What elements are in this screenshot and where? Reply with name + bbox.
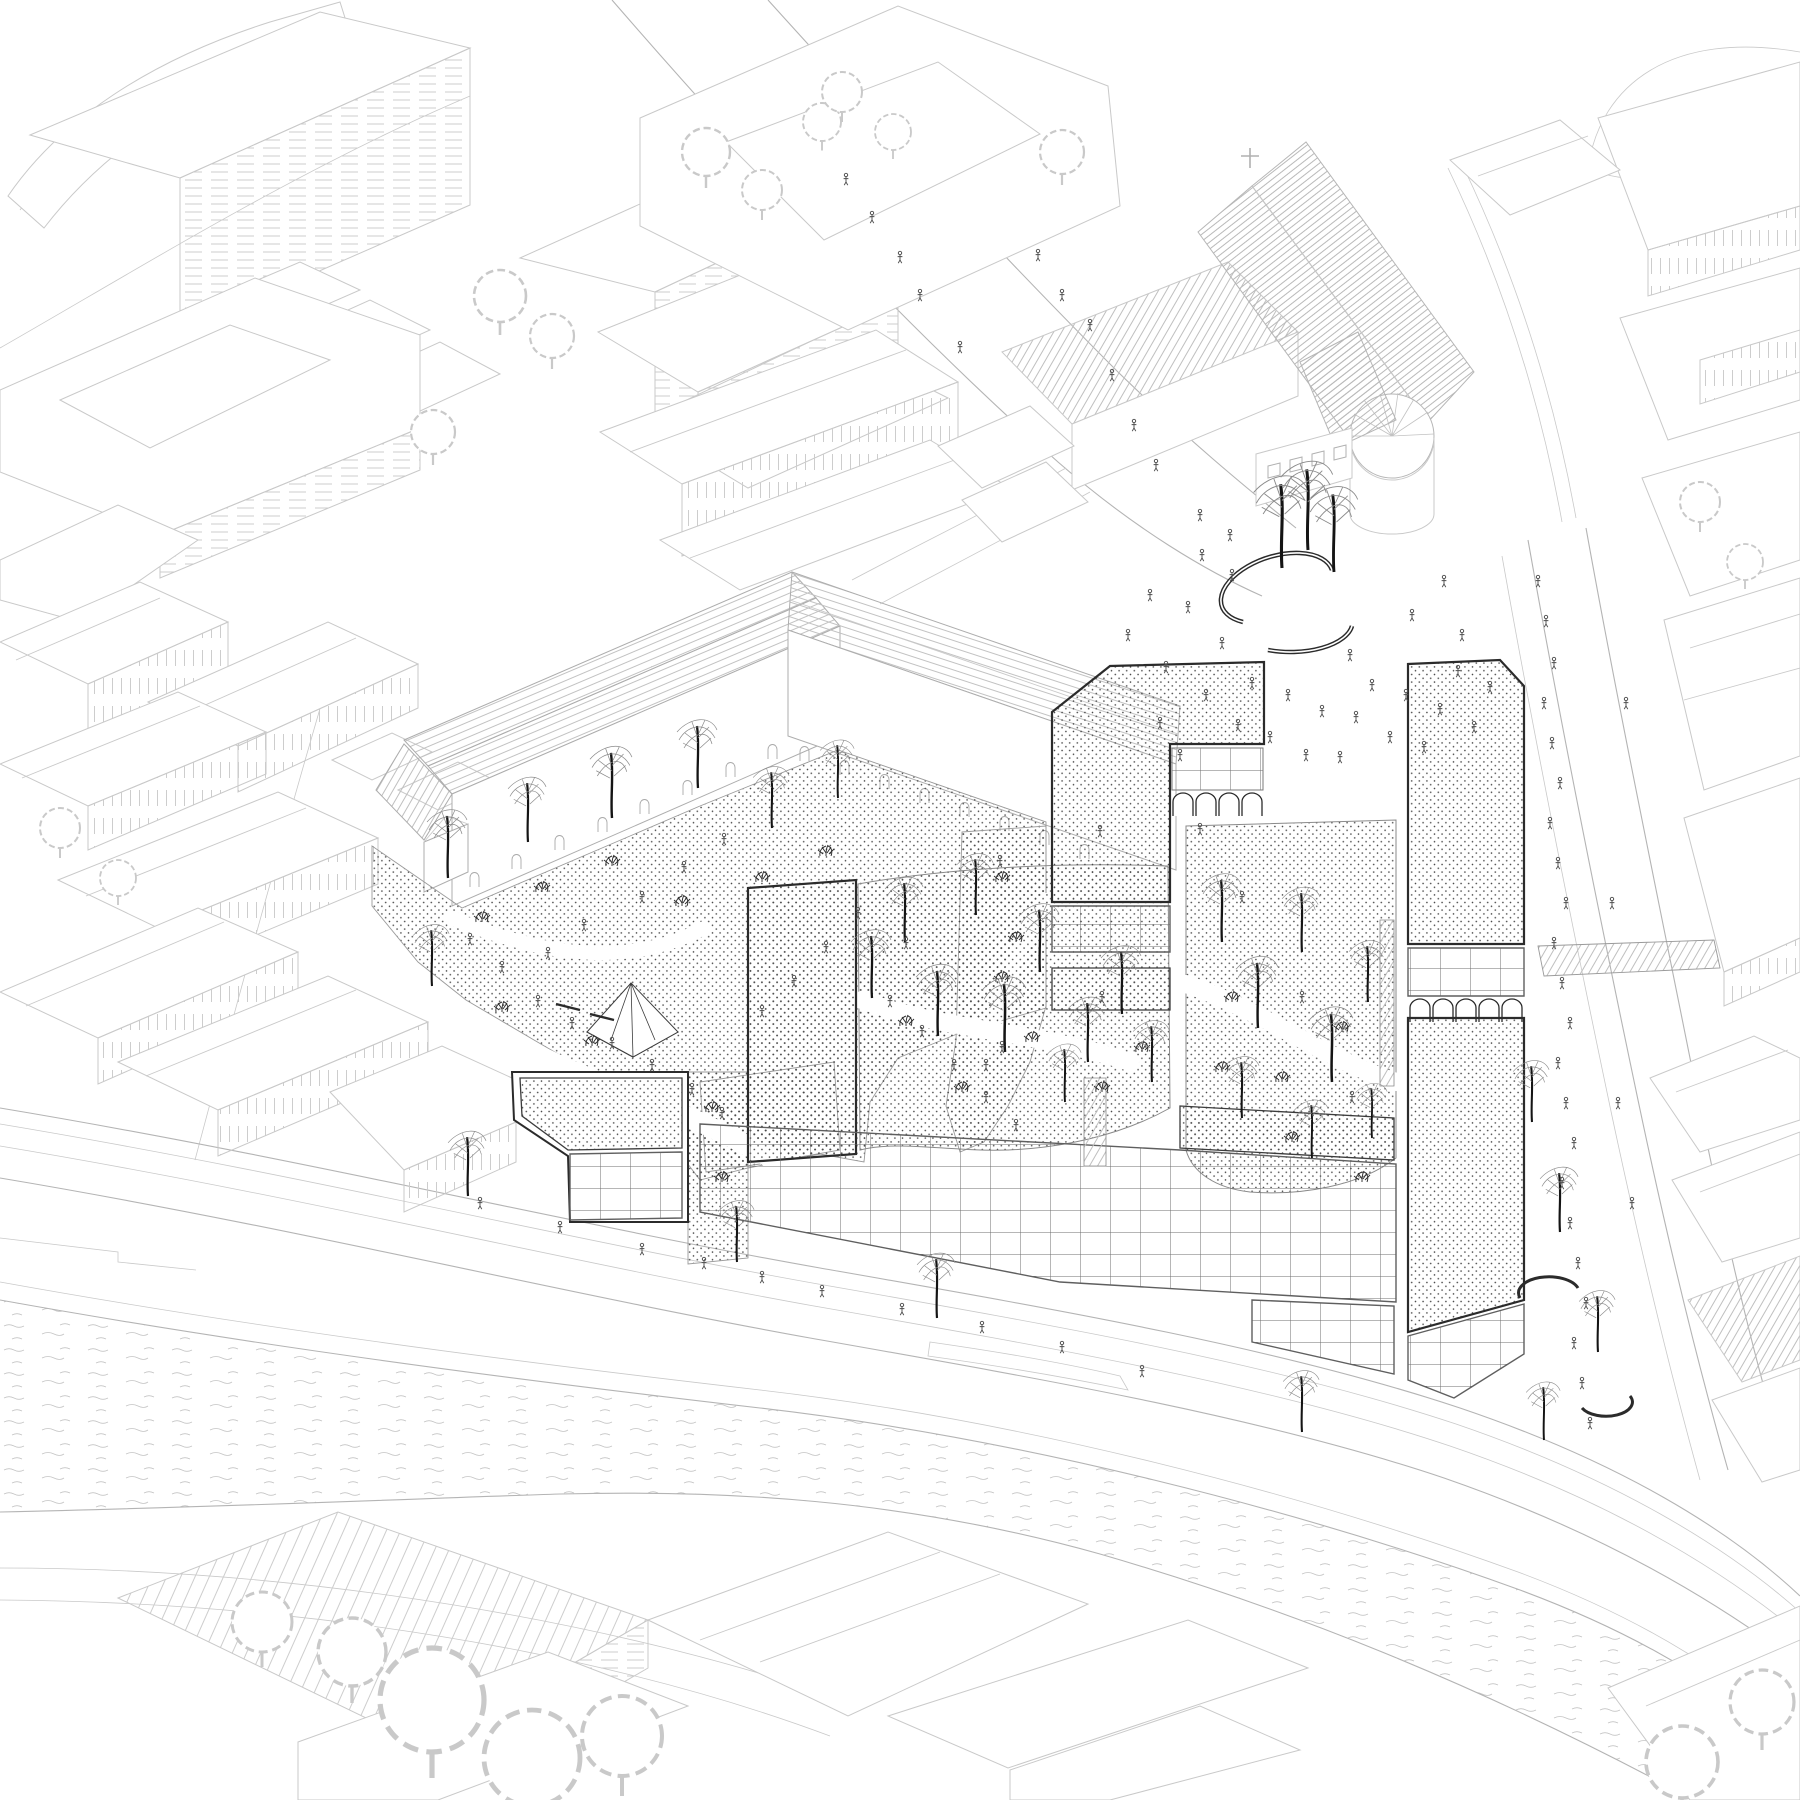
context-tree bbox=[582, 1696, 662, 1796]
site-tree bbox=[1526, 1382, 1560, 1440]
drawing-canvas bbox=[0, 0, 1800, 1800]
church-cross-icon bbox=[1241, 148, 1259, 168]
person bbox=[1354, 711, 1359, 723]
person bbox=[1588, 1417, 1593, 1429]
building-c-south bbox=[1408, 1018, 1524, 1398]
garden-stair bbox=[1084, 1078, 1106, 1166]
person bbox=[1126, 629, 1131, 641]
person bbox=[1286, 689, 1291, 701]
person bbox=[1556, 1057, 1561, 1069]
site-tree bbox=[1283, 1371, 1319, 1432]
person bbox=[1268, 731, 1273, 743]
person bbox=[1200, 549, 1205, 561]
person bbox=[1186, 601, 1191, 613]
person bbox=[1320, 705, 1325, 717]
street-canopy bbox=[1538, 940, 1720, 976]
building-middle-slab bbox=[748, 880, 856, 1162]
person bbox=[900, 1303, 905, 1315]
person bbox=[1410, 609, 1415, 621]
context-tree bbox=[474, 270, 526, 335]
person bbox=[1564, 1097, 1569, 1109]
person bbox=[1568, 1217, 1573, 1229]
person bbox=[558, 1221, 563, 1233]
person bbox=[1304, 749, 1309, 761]
person bbox=[1564, 897, 1569, 909]
person bbox=[1198, 509, 1203, 521]
person bbox=[1560, 977, 1565, 989]
context-block-right bbox=[1598, 62, 1800, 1006]
person bbox=[1572, 1337, 1577, 1349]
person bbox=[820, 1285, 825, 1297]
person bbox=[958, 341, 963, 353]
person bbox=[1542, 697, 1547, 709]
building-d-southwest bbox=[512, 1072, 688, 1222]
person bbox=[1624, 697, 1629, 709]
person bbox=[1228, 529, 1233, 541]
proposed-development bbox=[372, 553, 1632, 1416]
person bbox=[1460, 629, 1465, 641]
person bbox=[1580, 1377, 1585, 1389]
building-b-north bbox=[1408, 660, 1524, 1022]
site-tree bbox=[917, 1253, 955, 1318]
person bbox=[1552, 657, 1557, 669]
person bbox=[1572, 1137, 1577, 1149]
person bbox=[1154, 459, 1159, 471]
person bbox=[1220, 637, 1225, 649]
person bbox=[1140, 1365, 1145, 1377]
context-tree bbox=[40, 808, 80, 858]
person bbox=[1348, 649, 1353, 661]
person bbox=[1568, 1017, 1573, 1029]
person bbox=[640, 1243, 645, 1255]
person bbox=[1616, 1097, 1621, 1109]
person bbox=[478, 1197, 483, 1209]
person bbox=[1548, 817, 1553, 829]
person bbox=[1338, 751, 1343, 763]
person bbox=[1550, 737, 1555, 749]
person bbox=[1610, 897, 1615, 909]
axonometric-site-plan bbox=[0, 0, 1800, 1800]
person bbox=[760, 1271, 765, 1283]
person bbox=[1558, 777, 1563, 789]
person bbox=[1576, 1257, 1581, 1269]
person bbox=[980, 1321, 985, 1333]
person bbox=[1148, 589, 1153, 601]
person bbox=[1036, 249, 1041, 261]
person bbox=[1388, 731, 1393, 743]
waterfront-podium bbox=[700, 1106, 1396, 1374]
person bbox=[1370, 679, 1375, 691]
person bbox=[1544, 615, 1549, 627]
person bbox=[1060, 289, 1065, 301]
person bbox=[1442, 575, 1447, 587]
person bbox=[1556, 857, 1561, 869]
context-tree bbox=[530, 314, 574, 369]
